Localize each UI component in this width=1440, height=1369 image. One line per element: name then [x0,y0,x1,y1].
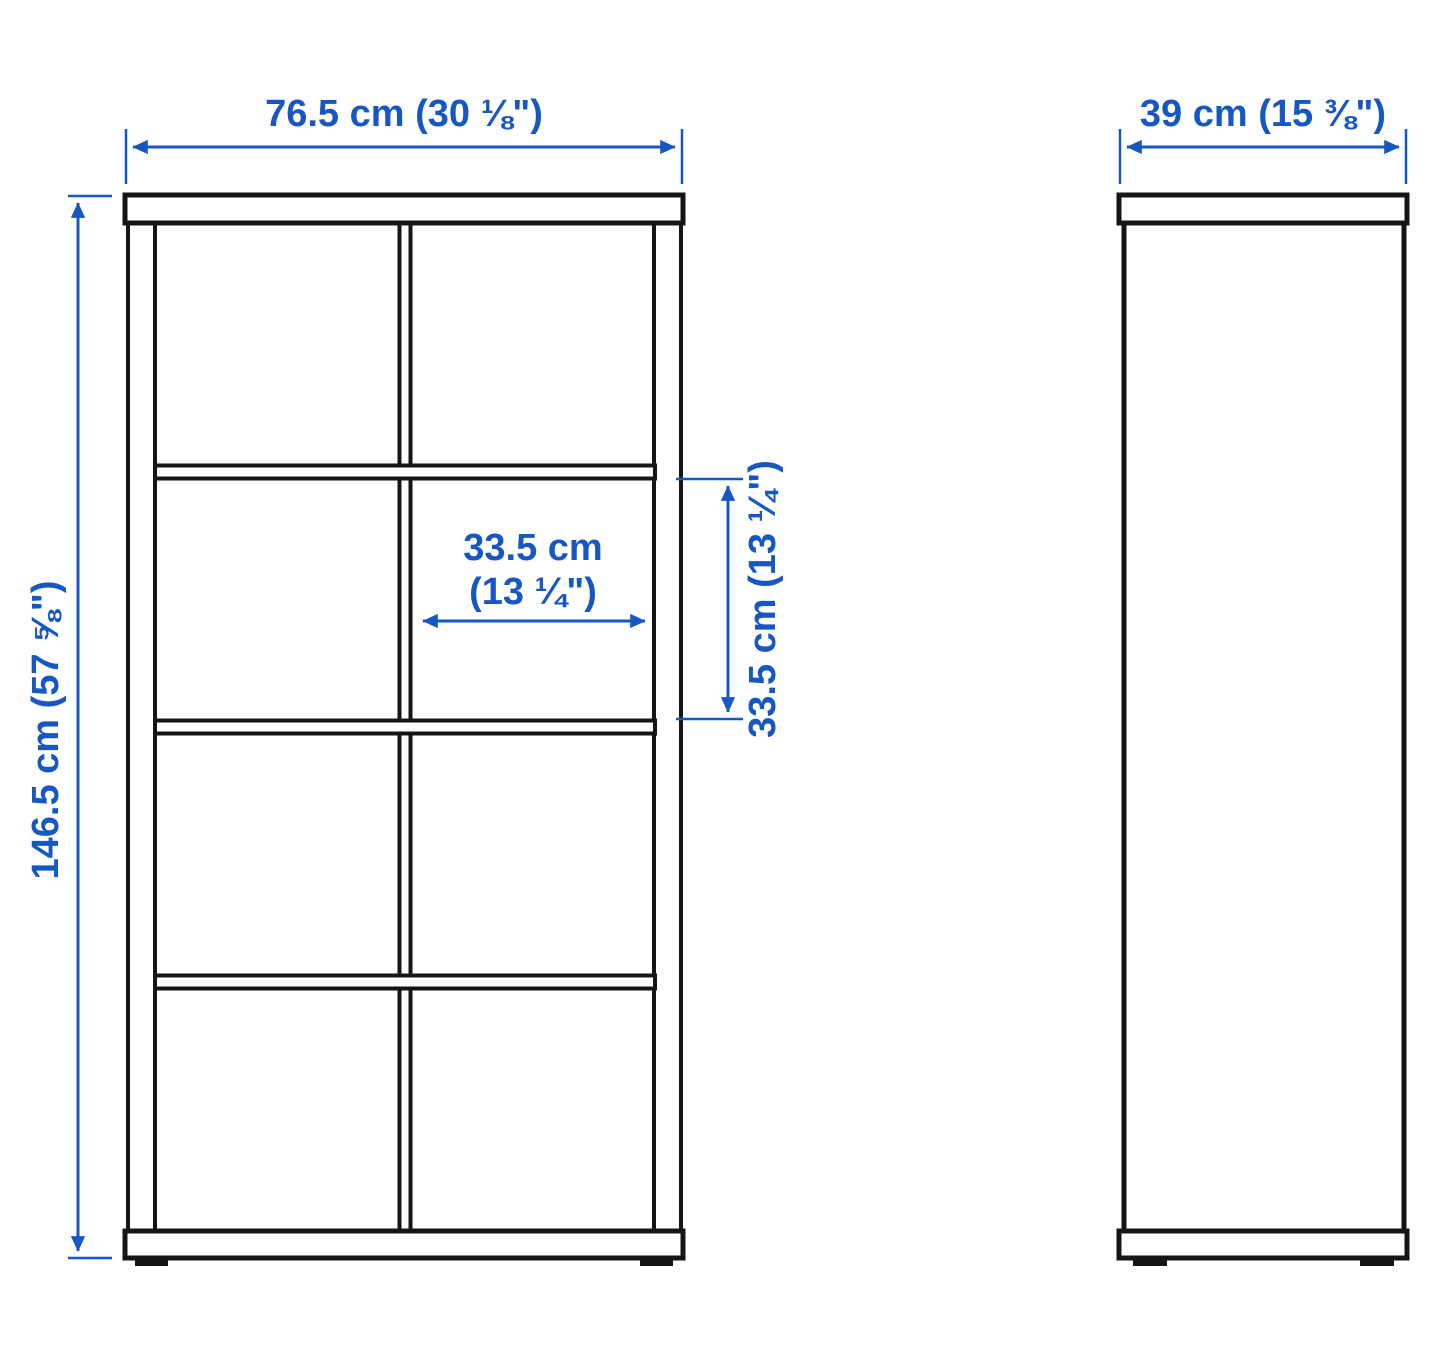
cell-width-label: 33.5 cm (13 ¼") [463,526,602,614]
front-width-label: 76.5 cm (30 ⅛") [265,92,543,136]
front-right-side-panel [654,223,681,1231]
cell-width-label-line2: (13 ¼") [463,570,602,614]
front-shelf-3 [155,976,655,989]
dimension-diagram: 76.5 cm (30 ⅛") 39 cm (15 ⅜") 146.5 cm (… [0,0,1440,1369]
side-right-foot [1360,1258,1394,1266]
cell-height-label: 33.5 cm (13 ¼") [741,460,785,738]
front-left-side-panel [128,223,155,1231]
side-top-board [1119,195,1407,223]
side-bottom-board [1119,1231,1407,1258]
front-top-board [125,195,683,223]
side-left-foot [1133,1258,1167,1266]
side-view [1119,195,1407,1266]
diagram-canvas [0,0,1440,1369]
front-shelf-2 [155,721,655,734]
front-view [125,195,683,1266]
front-left-foot [135,1258,168,1266]
front-right-foot [640,1258,673,1266]
cell-width-label-line1: 33.5 cm [463,526,602,570]
front-bottom-board [125,1231,683,1258]
side-body-panel [1124,223,1404,1231]
front-height-label: 146.5 cm (57 ⅝") [24,581,68,880]
side-depth-label: 39 cm (15 ⅜") [1140,92,1386,136]
front-shelf-1 [155,466,655,479]
